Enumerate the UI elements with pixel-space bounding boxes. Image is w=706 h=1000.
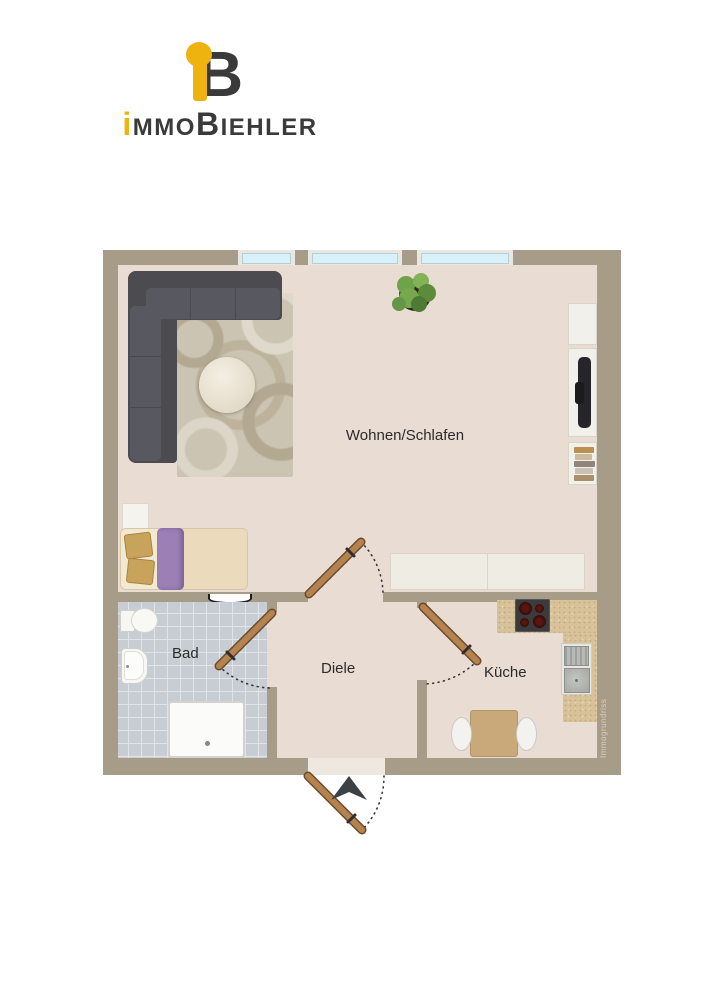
door-kueche: [423, 607, 477, 684]
plant: [392, 273, 436, 312]
door-swing-arc: [362, 776, 384, 830]
door-wohnen: [309, 542, 383, 594]
room-label-kueche: Küche: [484, 664, 527, 681]
door-swing-arc: [423, 661, 477, 684]
entrance-arrow-icon: [331, 776, 367, 800]
doors-overlay: [0, 0, 706, 1000]
door-bad: [219, 613, 272, 688]
room-label-diele: Diele: [321, 660, 355, 677]
door-entrance: [308, 776, 384, 830]
room-label-bad: Bad: [172, 645, 199, 662]
page: { "brand": { "monogram_b": "B", "word_i"…: [0, 0, 706, 1000]
watermark-immogrundriss: Immogrundriss: [599, 688, 608, 758]
room-label-wohnen: Wohnen/Schlafen: [340, 427, 470, 444]
door-swing-arc: [219, 666, 272, 688]
door-swing-arc: [361, 542, 383, 594]
